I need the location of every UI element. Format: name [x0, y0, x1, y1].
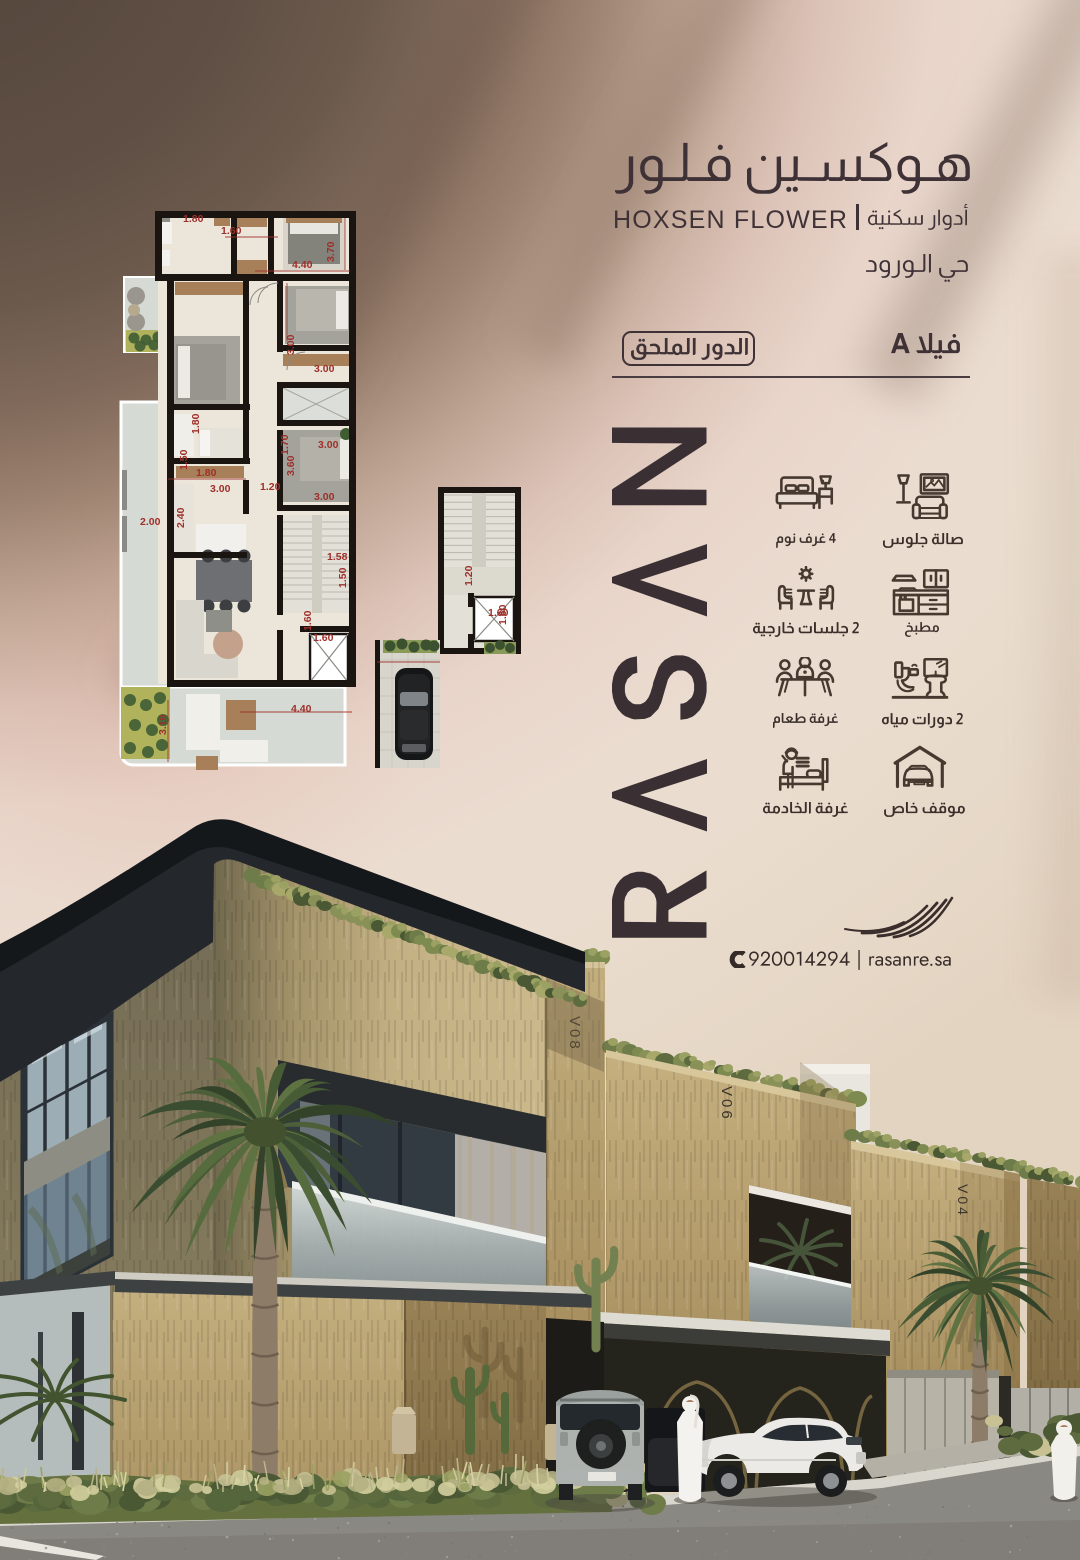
svg-text:1.50: 1.50	[178, 449, 190, 470]
svg-text:1.50: 1.50	[337, 567, 349, 588]
svg-text:2.00: 2.00	[140, 516, 161, 528]
svg-text:1.70: 1.70	[279, 434, 291, 455]
svg-text:3.00: 3.00	[210, 483, 231, 495]
svg-text:1.80: 1.80	[196, 467, 217, 479]
svg-text:4.40: 4.40	[291, 703, 312, 715]
svg-text:1.60: 1.60	[221, 225, 242, 237]
svg-text:1.60: 1.60	[497, 604, 509, 625]
svg-text:4.40: 4.40	[292, 259, 313, 271]
svg-text:1.58: 1.58	[327, 551, 348, 563]
svg-text:1.80: 1.80	[190, 413, 202, 434]
svg-text:1.60: 1.60	[313, 632, 334, 644]
svg-text:3.00: 3.00	[314, 491, 335, 503]
svg-text:3.10: 3.10	[157, 714, 169, 735]
svg-text:1.20: 1.20	[260, 481, 281, 493]
svg-text:2.40: 2.40	[175, 507, 187, 528]
svg-text:1.60: 1.60	[302, 610, 314, 631]
svg-text:V06: V06	[718, 1086, 735, 1122]
svg-text:1.80: 1.80	[183, 213, 204, 225]
svg-text:3.70: 3.70	[325, 241, 337, 262]
svg-text:3.00: 3.00	[318, 439, 339, 451]
svg-text:3.60: 3.60	[285, 455, 297, 476]
svg-text:V04: V04	[955, 1184, 971, 1218]
svg-text:3.00: 3.00	[314, 363, 335, 375]
svg-text:1.20: 1.20	[463, 565, 475, 586]
